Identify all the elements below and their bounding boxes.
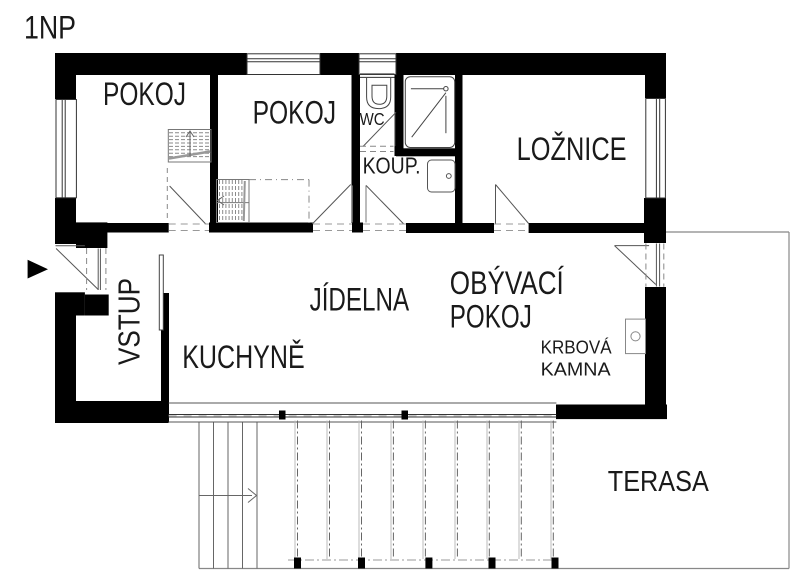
svg-text:TERASA: TERASA [608,466,709,498]
svg-text:KAMNA: KAMNA [541,360,611,380]
svg-text:KRBOVÁ: KRBOVÁ [541,338,612,358]
svg-text:POKOJ: POKOJ [103,76,186,112]
svg-text:JÍDELNA: JÍDELNA [310,281,410,317]
svg-text:KUCHYNĚ: KUCHYNĚ [182,339,304,375]
svg-text:POKOJ: POKOJ [253,94,337,130]
svg-text:1NP: 1NP [24,10,76,46]
svg-text:LOŽNICE: LOŽNICE [517,131,627,167]
svg-text:OBÝVACÍ: OBÝVACÍ [450,265,564,301]
svg-text:VSTUP: VSTUP [111,278,146,365]
svg-text:WC: WC [360,109,385,129]
svg-text:KOUP.: KOUP. [363,153,421,179]
svg-text:POKOJ: POKOJ [450,298,532,334]
